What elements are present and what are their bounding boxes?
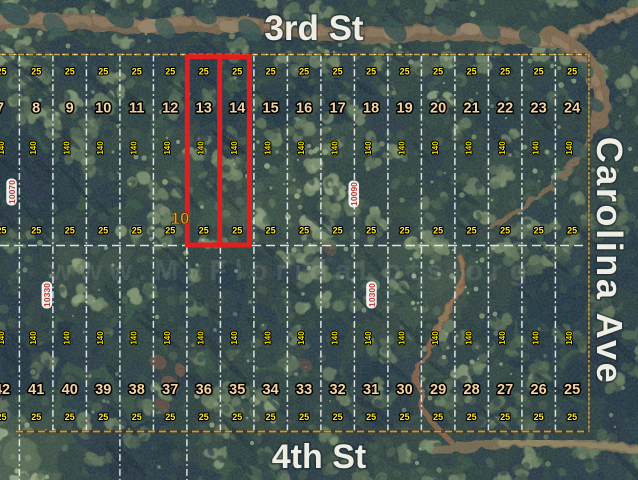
svg-text:41: 41 bbox=[28, 382, 44, 398]
svg-text:25: 25 bbox=[299, 226, 309, 236]
svg-text:8: 8 bbox=[32, 101, 40, 117]
svg-text:19: 19 bbox=[397, 101, 413, 117]
svg-text:34: 34 bbox=[263, 382, 279, 398]
svg-text:140: 140 bbox=[331, 331, 340, 345]
svg-text:26: 26 bbox=[531, 382, 547, 398]
svg-text:140: 140 bbox=[532, 141, 541, 155]
svg-text:25: 25 bbox=[232, 412, 242, 422]
svg-text:10070: 10070 bbox=[7, 180, 17, 204]
svg-text:40: 40 bbox=[62, 382, 78, 398]
svg-text:25: 25 bbox=[98, 226, 108, 236]
svg-text:18: 18 bbox=[363, 101, 379, 117]
svg-text:25: 25 bbox=[400, 412, 410, 422]
svg-text:Carolina Ave: Carolina Ave bbox=[589, 137, 630, 386]
svg-text:140: 140 bbox=[63, 331, 72, 345]
svg-text:140: 140 bbox=[398, 331, 407, 345]
svg-text:140: 140 bbox=[197, 331, 206, 345]
svg-text:140: 140 bbox=[264, 141, 273, 155]
svg-text:25: 25 bbox=[400, 67, 410, 77]
svg-text:25: 25 bbox=[132, 67, 142, 77]
svg-text:25: 25 bbox=[467, 412, 477, 422]
svg-text:25: 25 bbox=[165, 412, 175, 422]
svg-text:140: 140 bbox=[331, 141, 340, 155]
svg-text:25: 25 bbox=[433, 226, 443, 236]
svg-text:140: 140 bbox=[431, 331, 440, 345]
svg-text:25: 25 bbox=[299, 67, 309, 77]
svg-text:140: 140 bbox=[163, 141, 172, 155]
svg-text:25: 25 bbox=[500, 412, 510, 422]
svg-text:25: 25 bbox=[564, 382, 580, 398]
svg-text:25: 25 bbox=[567, 226, 577, 236]
svg-text:3rd St: 3rd St bbox=[264, 9, 364, 48]
svg-text:25: 25 bbox=[65, 226, 75, 236]
svg-text:29: 29 bbox=[430, 382, 446, 398]
svg-text:14: 14 bbox=[229, 101, 245, 117]
svg-text:25: 25 bbox=[65, 67, 75, 77]
svg-text:10: 10 bbox=[95, 101, 111, 117]
svg-text:25: 25 bbox=[0, 412, 7, 422]
svg-text:25: 25 bbox=[333, 67, 343, 77]
svg-text:21: 21 bbox=[464, 101, 480, 117]
svg-text:140: 140 bbox=[29, 331, 38, 345]
svg-text:25: 25 bbox=[98, 67, 108, 77]
svg-text:10090: 10090 bbox=[349, 182, 359, 206]
svg-text:25: 25 bbox=[132, 412, 142, 422]
svg-text:30: 30 bbox=[397, 382, 413, 398]
svg-text:25: 25 bbox=[299, 412, 309, 422]
svg-text:25: 25 bbox=[31, 226, 41, 236]
svg-text:140: 140 bbox=[297, 331, 306, 345]
svg-text:13: 13 bbox=[196, 101, 212, 117]
svg-text:4th St: 4th St bbox=[272, 438, 366, 476]
svg-text:25: 25 bbox=[433, 412, 443, 422]
svg-text:25: 25 bbox=[65, 412, 75, 422]
svg-text:25: 25 bbox=[534, 412, 544, 422]
svg-text:25: 25 bbox=[31, 412, 41, 422]
svg-text:27: 27 bbox=[497, 382, 513, 398]
svg-text:9: 9 bbox=[66, 101, 74, 117]
svg-text:140: 140 bbox=[498, 331, 507, 345]
svg-text:140: 140 bbox=[565, 331, 574, 345]
svg-text:140: 140 bbox=[465, 331, 474, 345]
svg-text:140: 140 bbox=[565, 141, 574, 155]
svg-text:10: 10 bbox=[171, 209, 190, 228]
svg-text:25: 25 bbox=[534, 67, 544, 77]
svg-text:25: 25 bbox=[333, 226, 343, 236]
svg-text:12: 12 bbox=[162, 101, 178, 117]
svg-text:36: 36 bbox=[196, 382, 212, 398]
svg-text:140: 140 bbox=[297, 141, 306, 155]
svg-text:www.MyFloridaLots.org: www.MyFloridaLots.org bbox=[48, 255, 534, 287]
svg-text:17: 17 bbox=[330, 101, 346, 117]
svg-text:140: 140 bbox=[96, 141, 105, 155]
svg-text:25: 25 bbox=[467, 226, 477, 236]
svg-text:25: 25 bbox=[333, 412, 343, 422]
svg-text:140: 140 bbox=[264, 331, 273, 345]
svg-text:140: 140 bbox=[130, 141, 139, 155]
svg-text:25: 25 bbox=[266, 412, 276, 422]
svg-text:25: 25 bbox=[266, 226, 276, 236]
svg-text:25: 25 bbox=[534, 226, 544, 236]
svg-text:140: 140 bbox=[130, 331, 139, 345]
svg-text:140: 140 bbox=[398, 141, 407, 155]
svg-text:140: 140 bbox=[431, 141, 440, 155]
svg-text:25: 25 bbox=[0, 226, 7, 236]
svg-text:11: 11 bbox=[129, 101, 144, 117]
svg-text:140: 140 bbox=[364, 141, 373, 155]
svg-text:25: 25 bbox=[199, 226, 209, 236]
svg-text:140: 140 bbox=[197, 141, 206, 155]
svg-text:25: 25 bbox=[500, 67, 510, 77]
svg-text:25: 25 bbox=[31, 67, 41, 77]
svg-text:16: 16 bbox=[296, 101, 312, 117]
svg-text:140: 140 bbox=[465, 141, 474, 155]
svg-text:22: 22 bbox=[497, 101, 513, 117]
svg-text:140: 140 bbox=[230, 331, 239, 345]
svg-text:25: 25 bbox=[232, 226, 242, 236]
svg-text:25: 25 bbox=[199, 67, 209, 77]
svg-text:28: 28 bbox=[464, 382, 480, 398]
svg-text:140: 140 bbox=[0, 331, 6, 345]
svg-text:24: 24 bbox=[564, 101, 580, 117]
svg-text:23: 23 bbox=[531, 101, 547, 117]
svg-text:37: 37 bbox=[162, 382, 178, 398]
svg-text:140: 140 bbox=[63, 141, 72, 155]
svg-text:7: 7 bbox=[0, 101, 4, 117]
svg-text:25: 25 bbox=[266, 67, 276, 77]
svg-text:140: 140 bbox=[230, 141, 239, 155]
svg-text:25: 25 bbox=[0, 67, 7, 77]
svg-text:140: 140 bbox=[364, 331, 373, 345]
svg-text:20: 20 bbox=[430, 101, 446, 117]
svg-text:140: 140 bbox=[96, 331, 105, 345]
svg-text:140: 140 bbox=[163, 331, 172, 345]
svg-text:42: 42 bbox=[0, 382, 10, 398]
svg-text:25: 25 bbox=[366, 412, 376, 422]
svg-text:25: 25 bbox=[132, 226, 142, 236]
svg-text:15: 15 bbox=[263, 101, 279, 117]
svg-text:25: 25 bbox=[567, 67, 577, 77]
svg-text:25: 25 bbox=[165, 67, 175, 77]
svg-text:25: 25 bbox=[400, 226, 410, 236]
svg-text:38: 38 bbox=[129, 382, 145, 398]
svg-text:31: 31 bbox=[363, 382, 379, 398]
svg-text:25: 25 bbox=[433, 67, 443, 77]
svg-text:39: 39 bbox=[95, 382, 111, 398]
svg-text:140: 140 bbox=[0, 141, 6, 155]
svg-text:32: 32 bbox=[330, 382, 346, 398]
svg-text:25: 25 bbox=[567, 412, 577, 422]
svg-text:33: 33 bbox=[296, 382, 312, 398]
svg-text:140: 140 bbox=[532, 331, 541, 345]
svg-text:25: 25 bbox=[500, 226, 510, 236]
svg-text:25: 25 bbox=[232, 67, 242, 77]
svg-text:25: 25 bbox=[98, 412, 108, 422]
svg-text:140: 140 bbox=[498, 141, 507, 155]
svg-text:25: 25 bbox=[366, 67, 376, 77]
svg-text:140: 140 bbox=[29, 141, 38, 155]
svg-text:35: 35 bbox=[229, 382, 245, 398]
svg-text:25: 25 bbox=[467, 67, 477, 77]
svg-text:25: 25 bbox=[366, 226, 376, 236]
svg-text:25: 25 bbox=[199, 412, 209, 422]
